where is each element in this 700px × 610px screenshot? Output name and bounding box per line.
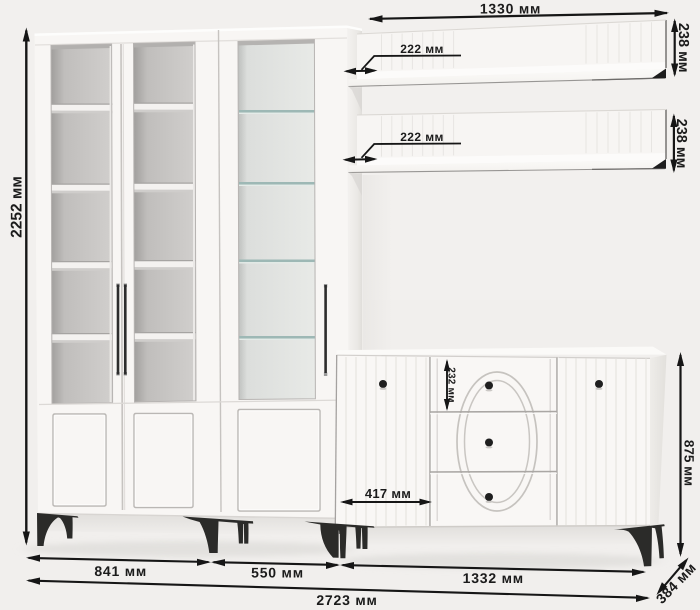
svg-text:550 мм: 550 мм — [251, 565, 304, 581]
svg-text:2723 мм: 2723 мм — [316, 592, 377, 608]
svg-text:232 мм: 232 мм — [446, 367, 457, 402]
svg-text:238 мм: 238 мм — [673, 119, 689, 169]
svg-text:1332 мм: 1332 мм — [463, 570, 524, 586]
svg-text:1330 мм: 1330 мм — [480, 1, 541, 17]
svg-text:222 мм: 222 мм — [400, 130, 444, 144]
svg-text:841 мм: 841 мм — [94, 563, 147, 579]
svg-text:875 мм: 875 мм — [681, 440, 696, 486]
svg-text:2252 мм: 2252 мм — [9, 176, 26, 238]
svg-text:238 мм: 238 мм — [675, 23, 691, 73]
svg-text:417 мм: 417 мм — [365, 486, 411, 501]
svg-text:222 мм: 222 мм — [400, 42, 444, 56]
